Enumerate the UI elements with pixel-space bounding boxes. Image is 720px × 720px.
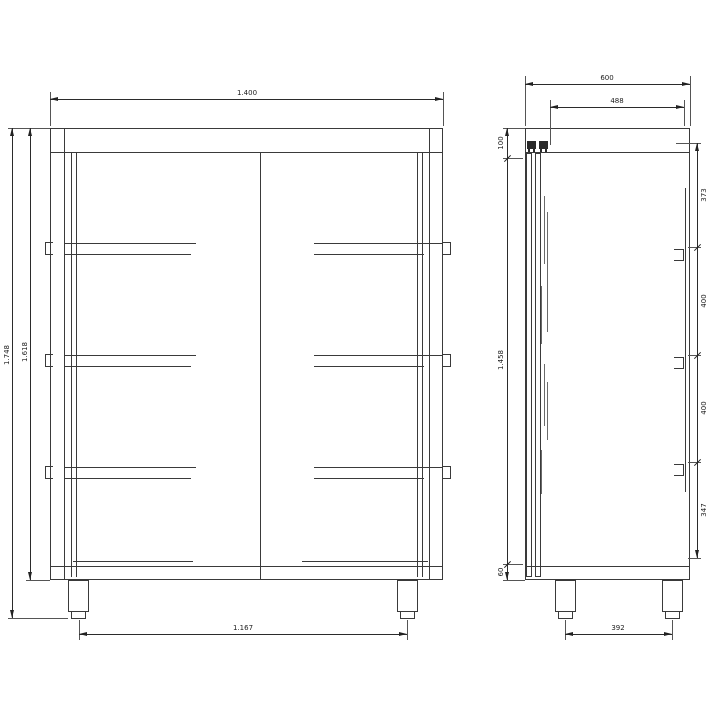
side-depth-label: 600 bbox=[600, 74, 613, 82]
dim-arrow bbox=[682, 82, 690, 86]
shelf-groove-line bbox=[314, 366, 424, 367]
front-feet-span-label: 1.167 bbox=[233, 624, 253, 632]
extension-line bbox=[503, 580, 525, 581]
extension-line bbox=[443, 92, 444, 126]
dim-arrow bbox=[79, 632, 87, 636]
shelf-groove-line bbox=[64, 254, 191, 255]
door-bottom-line bbox=[302, 561, 428, 562]
front-door-split-line bbox=[260, 153, 261, 579]
front-right-foot bbox=[397, 580, 418, 612]
dimension-line bbox=[550, 107, 684, 108]
extension-line bbox=[26, 580, 50, 581]
side-inner-depth-label: 488 bbox=[610, 97, 623, 105]
shelf-groove-edge-stub bbox=[443, 354, 451, 367]
side-cabinet-outline bbox=[525, 128, 690, 580]
hinge-block bbox=[527, 141, 536, 149]
front-left-foot bbox=[68, 580, 89, 612]
shelf-groove-edge-stub bbox=[443, 466, 451, 479]
dim-arrow bbox=[664, 632, 672, 636]
dimension-line bbox=[79, 634, 407, 635]
side-left-foot bbox=[555, 580, 576, 612]
front-width-label: 1.400 bbox=[237, 89, 257, 97]
front-total-height-label: 1.748 bbox=[3, 345, 11, 365]
shelf-groove-edge-stub bbox=[45, 466, 53, 479]
reflection-line bbox=[544, 364, 545, 426]
dimension-line bbox=[507, 128, 508, 580]
right-door-edge-line bbox=[422, 153, 423, 577]
side-base-height-label: 60 bbox=[497, 568, 505, 577]
hinge-leg bbox=[545, 149, 547, 152]
side-top-rail-line bbox=[526, 152, 689, 153]
extension-line bbox=[79, 620, 80, 640]
bay-height-label: 400 bbox=[700, 294, 708, 307]
side-top-section-label: 100 bbox=[497, 136, 505, 149]
shelf-groove-edge-stub bbox=[45, 242, 53, 255]
technical-drawing-canvas: 1.400 1.748 1.618 1.167 bbox=[0, 0, 720, 720]
front-right-stile-line bbox=[429, 129, 430, 579]
dimension-line bbox=[697, 143, 698, 558]
hinge-leg bbox=[540, 149, 542, 152]
door-profile-bar bbox=[535, 153, 541, 577]
dim-arrow bbox=[50, 97, 58, 101]
front-bottom-rail-line bbox=[51, 566, 442, 567]
dimension-line bbox=[565, 634, 672, 635]
interior-back-line bbox=[685, 188, 686, 492]
bay-height-label: 373 bbox=[700, 188, 708, 201]
shelf-groove-line bbox=[64, 478, 191, 479]
side-bottom-rail-line bbox=[526, 566, 689, 567]
hinge-leg bbox=[528, 149, 530, 152]
dim-arrow bbox=[435, 97, 443, 101]
door-bottom-line bbox=[73, 561, 193, 562]
side-door-height-label: 1.458 bbox=[497, 350, 505, 370]
reflection-line bbox=[547, 212, 548, 332]
dim-arrow bbox=[399, 632, 407, 636]
front-right-foot-tip bbox=[400, 611, 415, 619]
shelf-groove-line bbox=[64, 243, 196, 244]
dim-arrow bbox=[28, 572, 32, 580]
extension-line bbox=[565, 620, 566, 640]
shelf-groove-line bbox=[314, 243, 443, 244]
shelf-groove-edge-stub bbox=[45, 354, 53, 367]
hinge-leg bbox=[533, 149, 535, 152]
reflection-line bbox=[541, 450, 542, 494]
reflection-line bbox=[541, 286, 542, 344]
shelf-groove-edge-stub bbox=[443, 242, 451, 255]
dim-arrow bbox=[565, 632, 573, 636]
dimension-line bbox=[525, 84, 690, 85]
front-body-height-label: 1.618 bbox=[21, 342, 29, 362]
dimension-line bbox=[30, 128, 31, 580]
right-door-edge-line bbox=[417, 153, 418, 577]
dimension-line bbox=[50, 99, 443, 100]
door-profile-bar bbox=[526, 153, 532, 577]
shelf-clip bbox=[674, 357, 684, 369]
dim-arrow bbox=[525, 82, 533, 86]
dim-arrow bbox=[550, 105, 558, 109]
dim-arrow bbox=[695, 550, 699, 558]
extension-line bbox=[684, 100, 685, 126]
side-feet-span-label: 392 bbox=[611, 624, 624, 632]
shelf-groove-line bbox=[64, 355, 196, 356]
shelf-clip bbox=[674, 464, 684, 476]
shelf-groove-line bbox=[314, 355, 443, 356]
front-cabinet-outline bbox=[50, 128, 443, 580]
front-left-stile-line bbox=[64, 129, 65, 579]
shelf-groove-line bbox=[314, 478, 424, 479]
left-door-edge-line bbox=[76, 153, 77, 577]
side-right-foot bbox=[662, 580, 683, 612]
dim-arrow bbox=[28, 128, 32, 136]
dimension-line bbox=[12, 128, 13, 618]
dim-arrow bbox=[695, 143, 699, 151]
extension-line bbox=[407, 620, 408, 640]
reflection-line bbox=[544, 196, 545, 264]
reflection-line bbox=[547, 382, 548, 440]
dim-arrow bbox=[505, 572, 509, 580]
hinge-block bbox=[539, 141, 548, 149]
extension-line bbox=[8, 618, 68, 619]
dim-arrow bbox=[676, 105, 684, 109]
front-left-foot-tip bbox=[71, 611, 86, 619]
shelf-groove-line bbox=[64, 366, 191, 367]
extension-line bbox=[672, 620, 673, 640]
extension-line bbox=[690, 76, 691, 126]
bay-height-label: 347 bbox=[700, 503, 708, 516]
bay-height-label: 400 bbox=[700, 401, 708, 414]
extension-line bbox=[688, 558, 701, 559]
shelf-groove-line bbox=[314, 254, 424, 255]
left-door-edge-line bbox=[71, 153, 72, 577]
dim-arrow bbox=[10, 610, 14, 618]
dim-arrow bbox=[505, 128, 509, 136]
shelf-groove-line bbox=[314, 467, 443, 468]
dim-arrow bbox=[10, 128, 14, 136]
front-top-rail-line bbox=[51, 152, 442, 153]
side-right-foot-tip bbox=[665, 611, 680, 619]
shelf-groove-line bbox=[64, 467, 196, 468]
side-left-foot-tip bbox=[558, 611, 573, 619]
shelf-clip bbox=[674, 249, 684, 261]
